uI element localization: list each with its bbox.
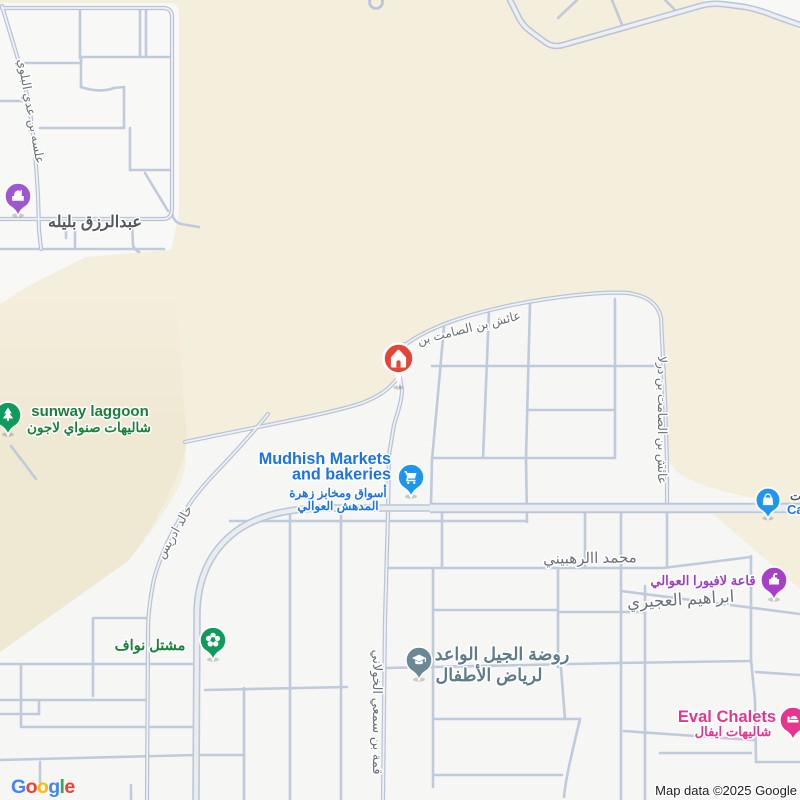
svg-text:قمة بن سمعي الخولاني: قمة بن سمعي الخولاني — [369, 649, 385, 774]
svg-text:عائش بن الصامت بن درلا: عائش بن الصامت بن درلا — [655, 356, 669, 484]
svg-text:المدهش العوالي: المدهش العوالي — [297, 499, 378, 514]
svg-text:عبدالرزق بليله: عبدالرزق بليله — [48, 214, 142, 232]
svg-text:محمد االرهبيني: محمد االرهبيني — [543, 549, 637, 568]
svg-text:sunway laggoon: sunway laggoon — [31, 403, 149, 420]
svg-text:شاليهات صنواي لاجون: شاليهات صنواي لاجون — [27, 420, 151, 436]
svg-text:and bakeries: and bakeries — [292, 466, 391, 484]
svg-text:مشتل نواف: مشتل نواف — [115, 638, 186, 654]
svg-text:Google: Google — [11, 776, 75, 798]
svg-text:Map data ©2025 Google: Map data ©2025 Google — [655, 783, 797, 798]
svg-text:Ca: Ca — [787, 502, 800, 517]
svg-text:لرياض الأطفال: لرياض الأطفال — [436, 663, 543, 686]
svg-text:شاليهات ايفال: شاليهات ايفال — [695, 724, 772, 740]
svg-text:الشاليهات: الشاليهات — [790, 489, 800, 504]
svg-text:قاعة لافيورا العوالي: قاعة لافيورا العوالي — [650, 573, 755, 589]
svg-text:روضة الجيل الواعد: روضة الجيل الواعد — [435, 644, 570, 665]
